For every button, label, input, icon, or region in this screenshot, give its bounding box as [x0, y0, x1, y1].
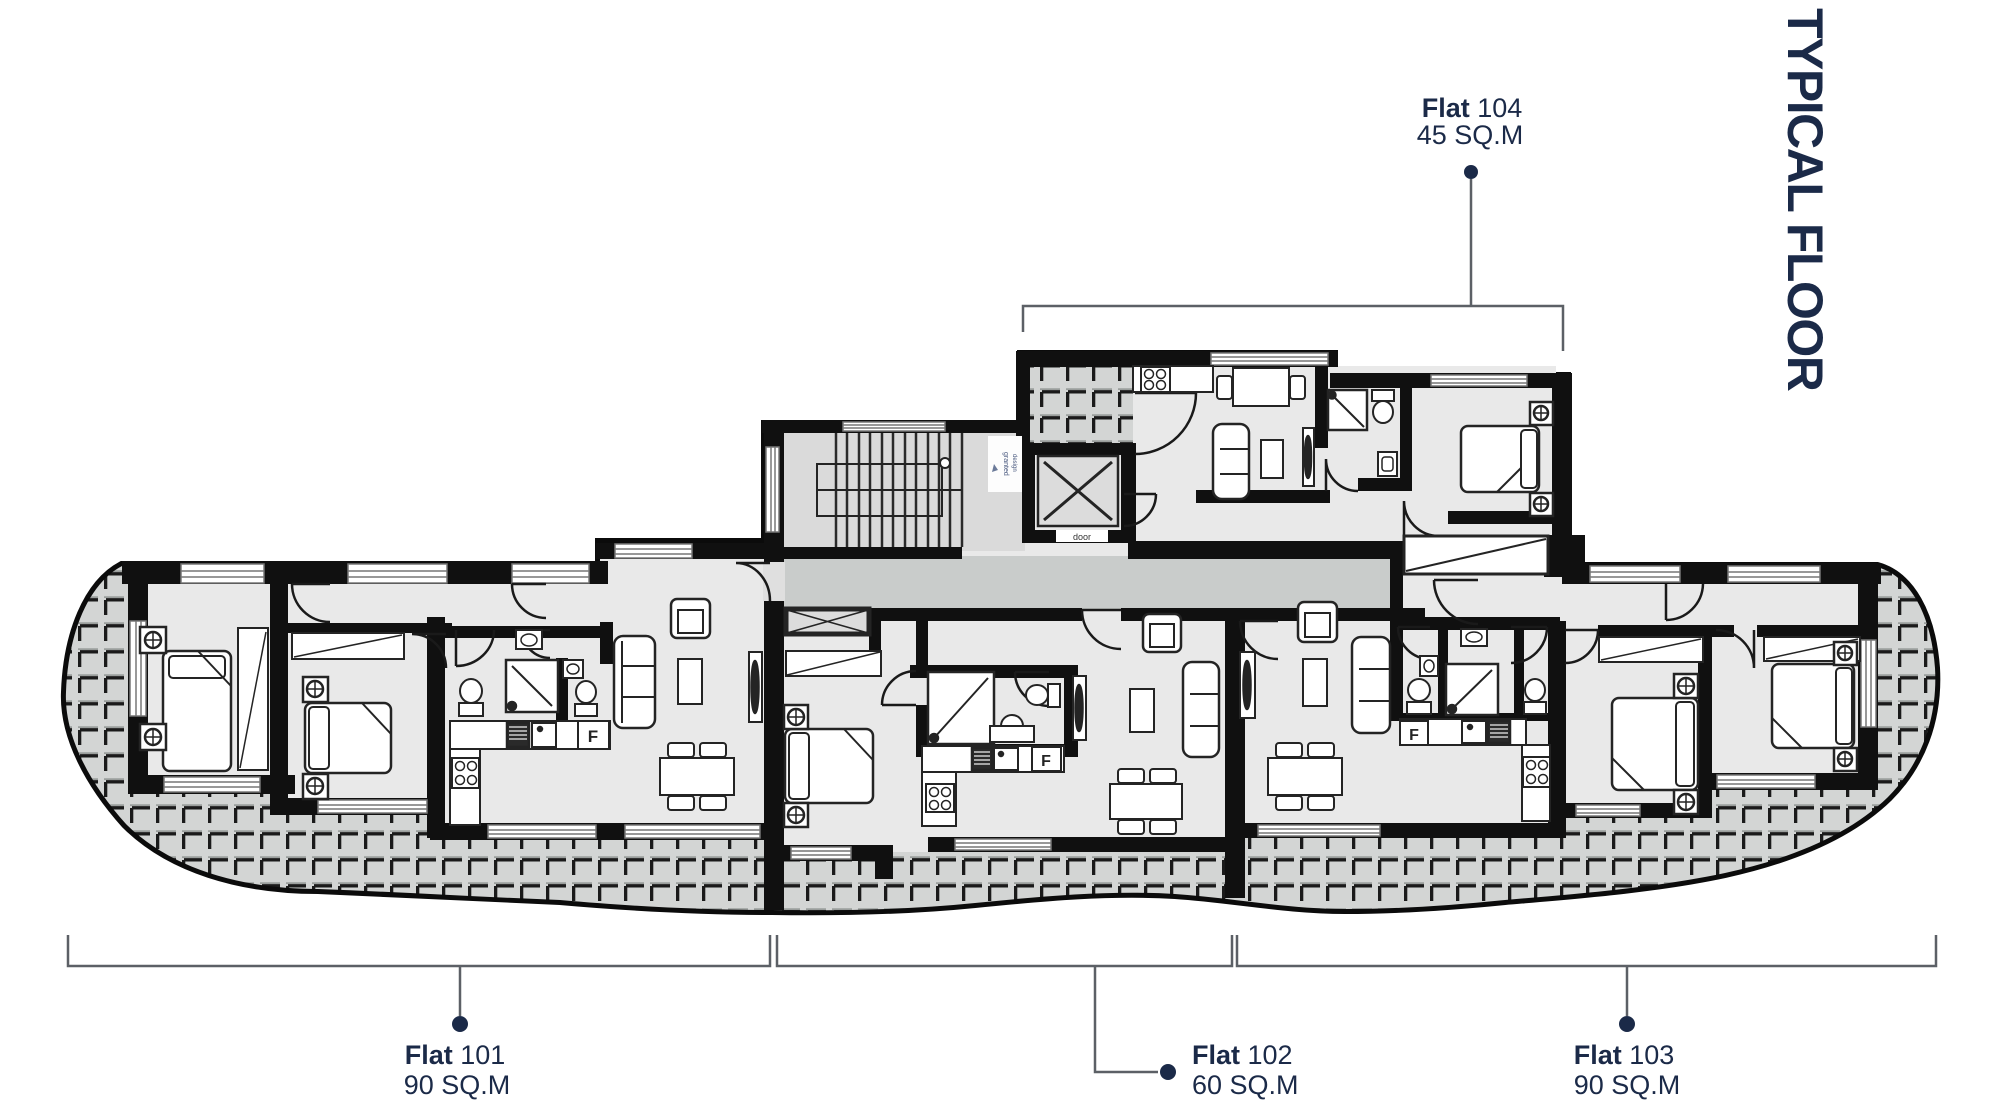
svg-text:TYPICAL FLOOR: TYPICAL FLOOR	[1777, 8, 1833, 392]
svg-text:Flat 102: Flat 102	[1192, 1040, 1293, 1070]
svg-text:granted: granted	[1002, 452, 1009, 476]
svg-text:F: F	[1409, 727, 1419, 744]
svg-text:F: F	[588, 727, 598, 746]
svg-text:design: design	[1011, 454, 1017, 472]
svg-text:60 SQ.M: 60 SQ.M	[1192, 1070, 1299, 1100]
svg-text:F: F	[1041, 753, 1051, 770]
svg-text:90 SQ.M: 90 SQ.M	[1574, 1070, 1681, 1100]
svg-text:Flat 101: Flat 101	[405, 1040, 506, 1070]
svg-text:45 SQ.M: 45 SQ.M	[1417, 120, 1524, 150]
svg-text:90 SQ.M: 90 SQ.M	[404, 1070, 511, 1100]
svg-text:Flat 104: Flat 104	[1422, 93, 1523, 123]
svg-text:Flat 103: Flat 103	[1574, 1040, 1675, 1070]
svg-text:door: door	[1073, 532, 1091, 542]
